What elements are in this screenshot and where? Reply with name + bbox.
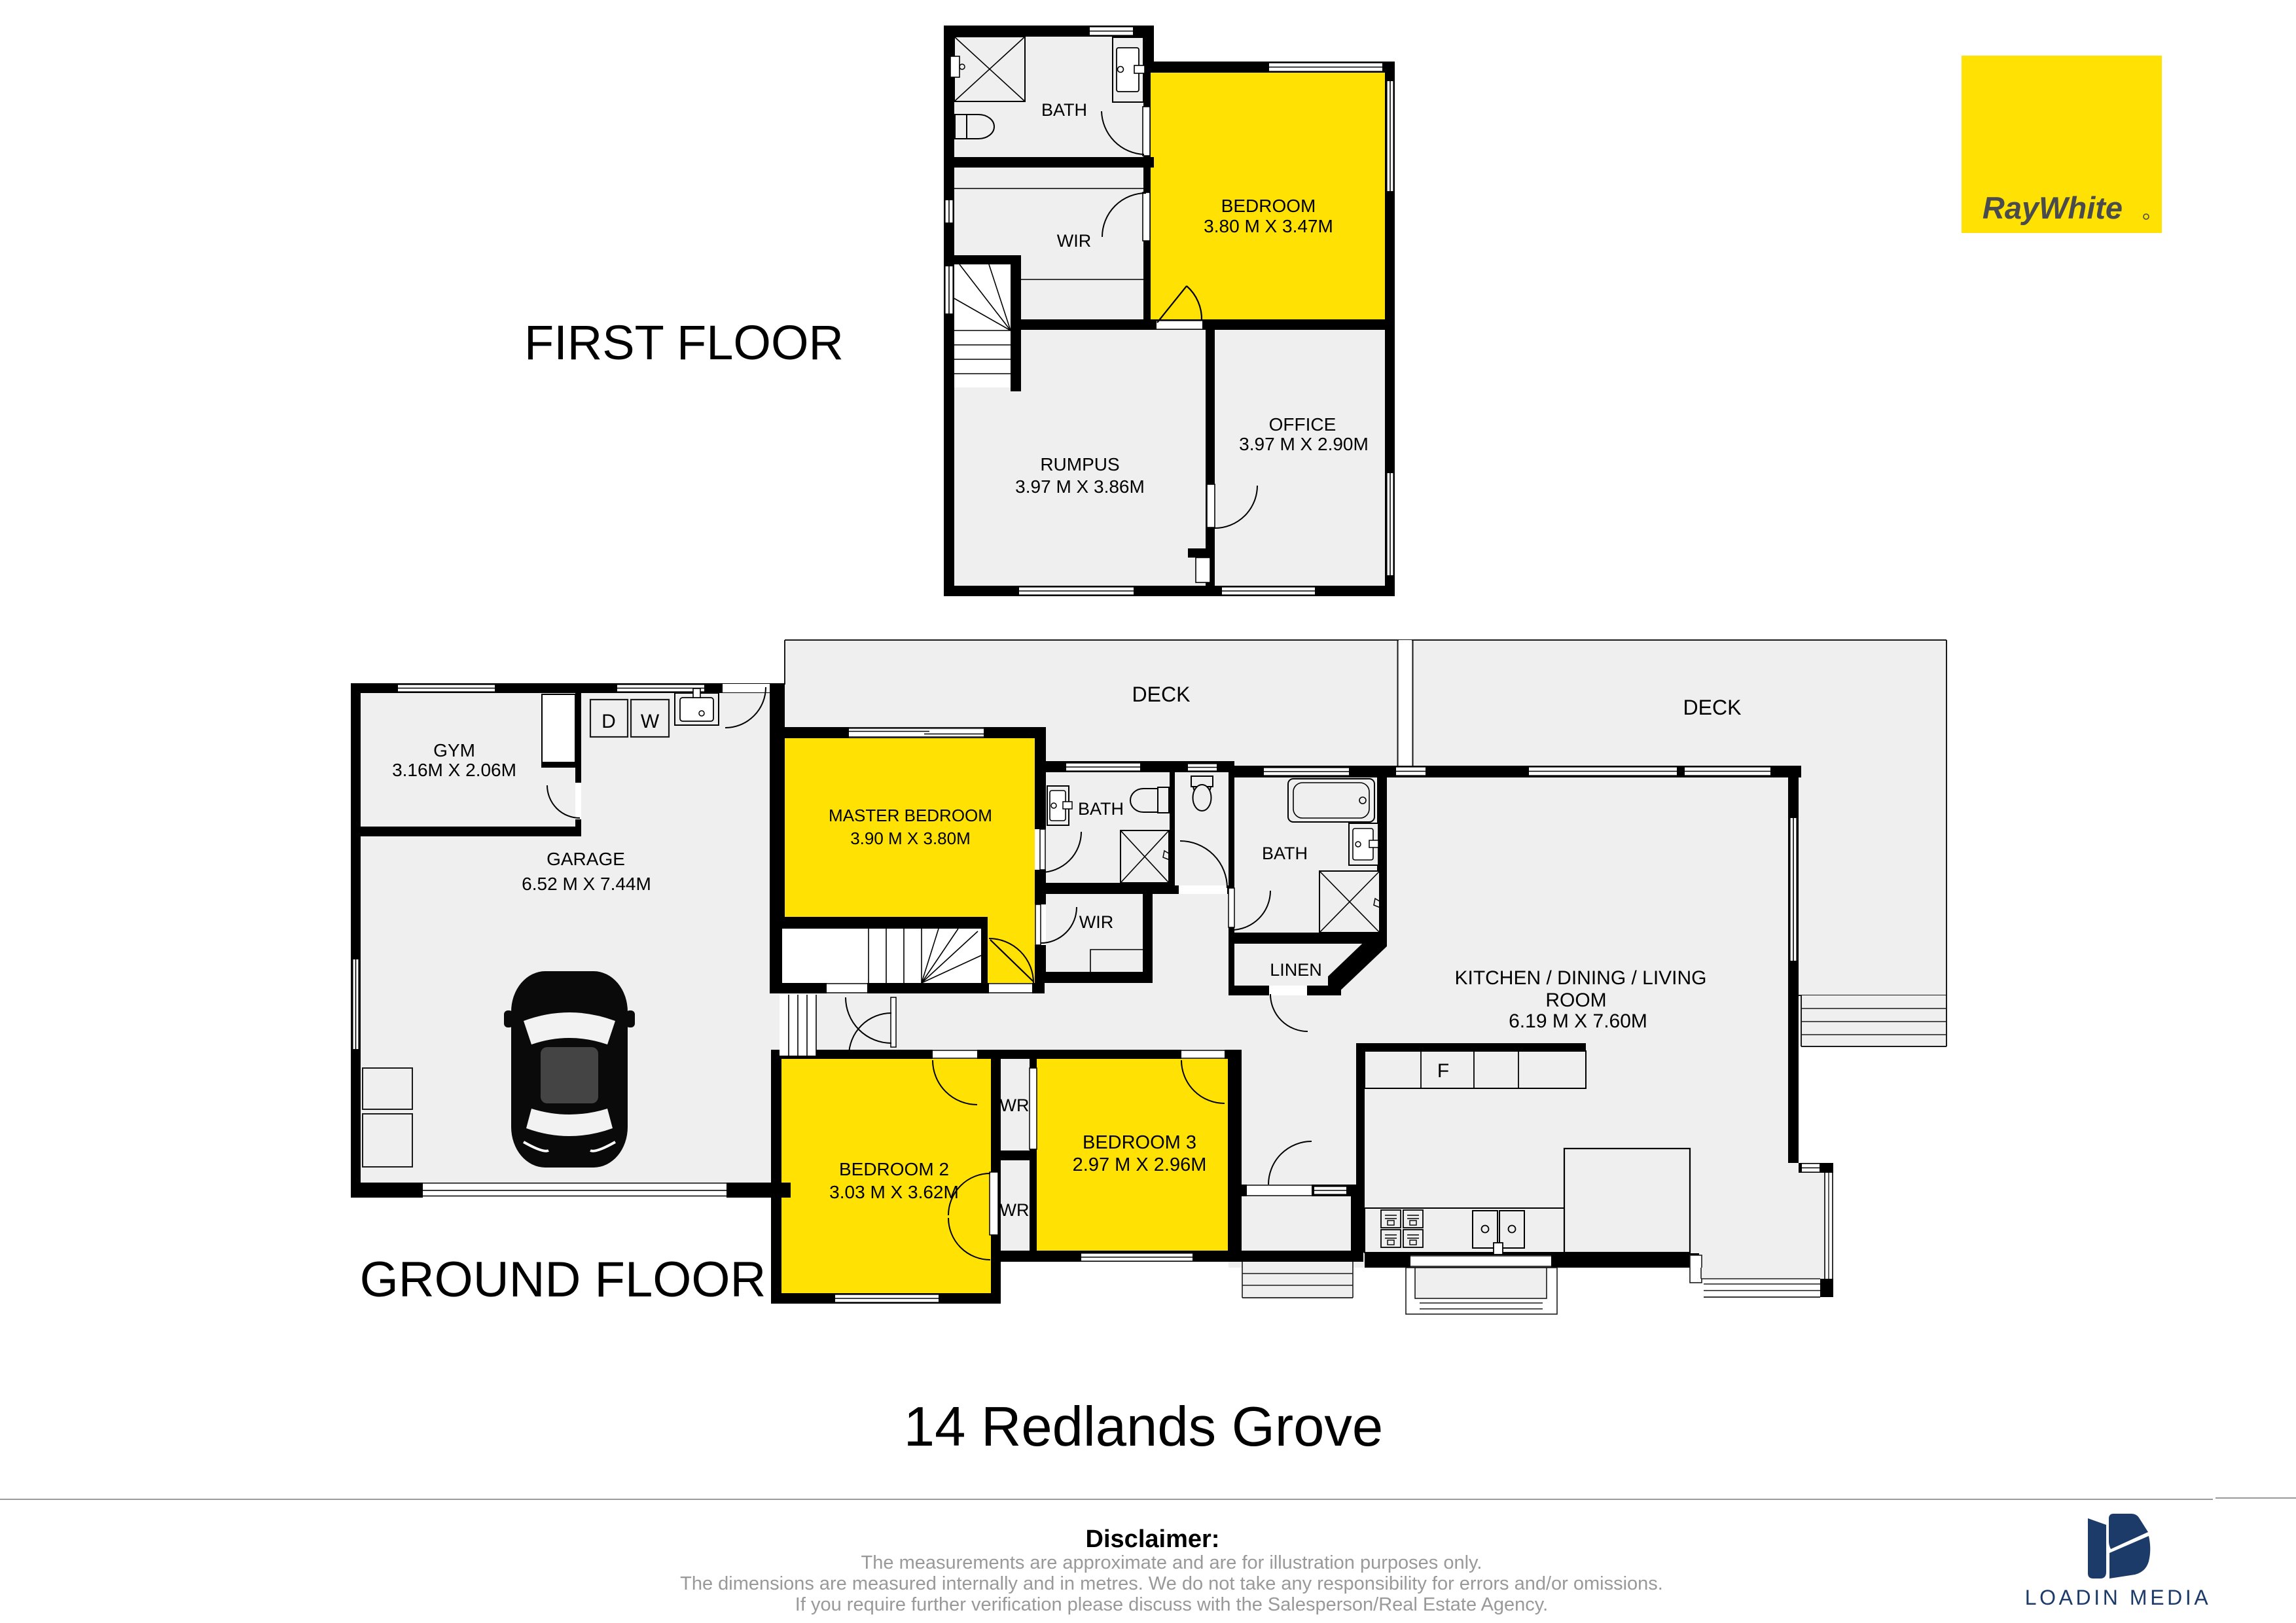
svg-text:3.97 M X 2.90M: 3.97 M X 2.90M [1239, 434, 1369, 454]
svg-text:F: F [1437, 1060, 1449, 1082]
svg-text:KITCHEN / DINING / LIVING: KITCHEN / DINING / LIVING [1454, 967, 1706, 989]
svg-text:3.80 M X 3.47M: 3.80 M X 3.47M [1204, 216, 1333, 236]
svg-text:WR: WR [1000, 1096, 1030, 1115]
svg-text:GYM: GYM [433, 740, 475, 760]
svg-text:3.03 M X 3.62M: 3.03 M X 3.62M [829, 1182, 959, 1202]
svg-text:LOADIN MEDIA: LOADIN MEDIA [2025, 1586, 2212, 1609]
svg-text:3.16M X 2.06M: 3.16M X 2.06M [392, 760, 516, 780]
svg-text:LINEN: LINEN [1270, 960, 1322, 980]
svg-text:DECK: DECK [1132, 683, 1191, 706]
svg-text:2.97 M X 2.96M: 2.97 M X 2.96M [1073, 1154, 1207, 1175]
svg-text:D: D [601, 711, 616, 732]
svg-text:RayWhite: RayWhite [1982, 190, 2123, 225]
svg-text:3.90 M X 3.80M: 3.90 M X 3.80M [850, 829, 971, 848]
svg-text:14 Redlands Grove: 14 Redlands Grove [904, 1396, 1383, 1458]
svg-text:Disclaimer:: Disclaimer: [1086, 1525, 1220, 1553]
svg-text:WIR: WIR [1057, 231, 1091, 251]
svg-text:BATH: BATH [1262, 844, 1308, 863]
svg-text:RUMPUS: RUMPUS [1040, 454, 1119, 474]
svg-text:BATH: BATH [1041, 100, 1087, 120]
svg-text:BEDROOM 3: BEDROOM 3 [1083, 1132, 1196, 1153]
svg-text:WR: WR [1000, 1200, 1030, 1220]
svg-text:DECK: DECK [1683, 696, 1742, 719]
svg-text:3.97 M X 3.86M: 3.97 M X 3.86M [1015, 476, 1145, 497]
svg-text:6.52 M X 7.44M: 6.52 M X 7.44M [522, 874, 651, 894]
svg-text:GARAGE: GARAGE [547, 849, 625, 869]
svg-text:FIRST FLOOR: FIRST FLOOR [524, 315, 844, 370]
svg-text:BEDROOM 2: BEDROOM 2 [839, 1159, 949, 1179]
svg-text:WIR: WIR [1079, 912, 1113, 932]
svg-text:If you require further verific: If you require further verification plea… [795, 1594, 1548, 1615]
svg-text:The measurements are approxima: The measurements are approximate and are… [861, 1552, 1482, 1573]
svg-text:W: W [641, 711, 660, 732]
svg-text:MASTER BEDROOM: MASTER BEDROOM [829, 806, 992, 825]
svg-text:The dimensions are measured in: The dimensions are measured internally a… [680, 1573, 1663, 1594]
svg-text:6.19 M X 7.60M: 6.19 M X 7.60M [1509, 1010, 1647, 1032]
svg-text:BATH: BATH [1078, 799, 1124, 819]
svg-text:OFFICE: OFFICE [1269, 414, 1336, 435]
svg-text:ROOM: ROOM [1545, 990, 1606, 1011]
svg-text:GROUND FLOOR: GROUND FLOOR [360, 1252, 766, 1308]
svg-text:BEDROOM: BEDROOM [1221, 196, 1316, 216]
